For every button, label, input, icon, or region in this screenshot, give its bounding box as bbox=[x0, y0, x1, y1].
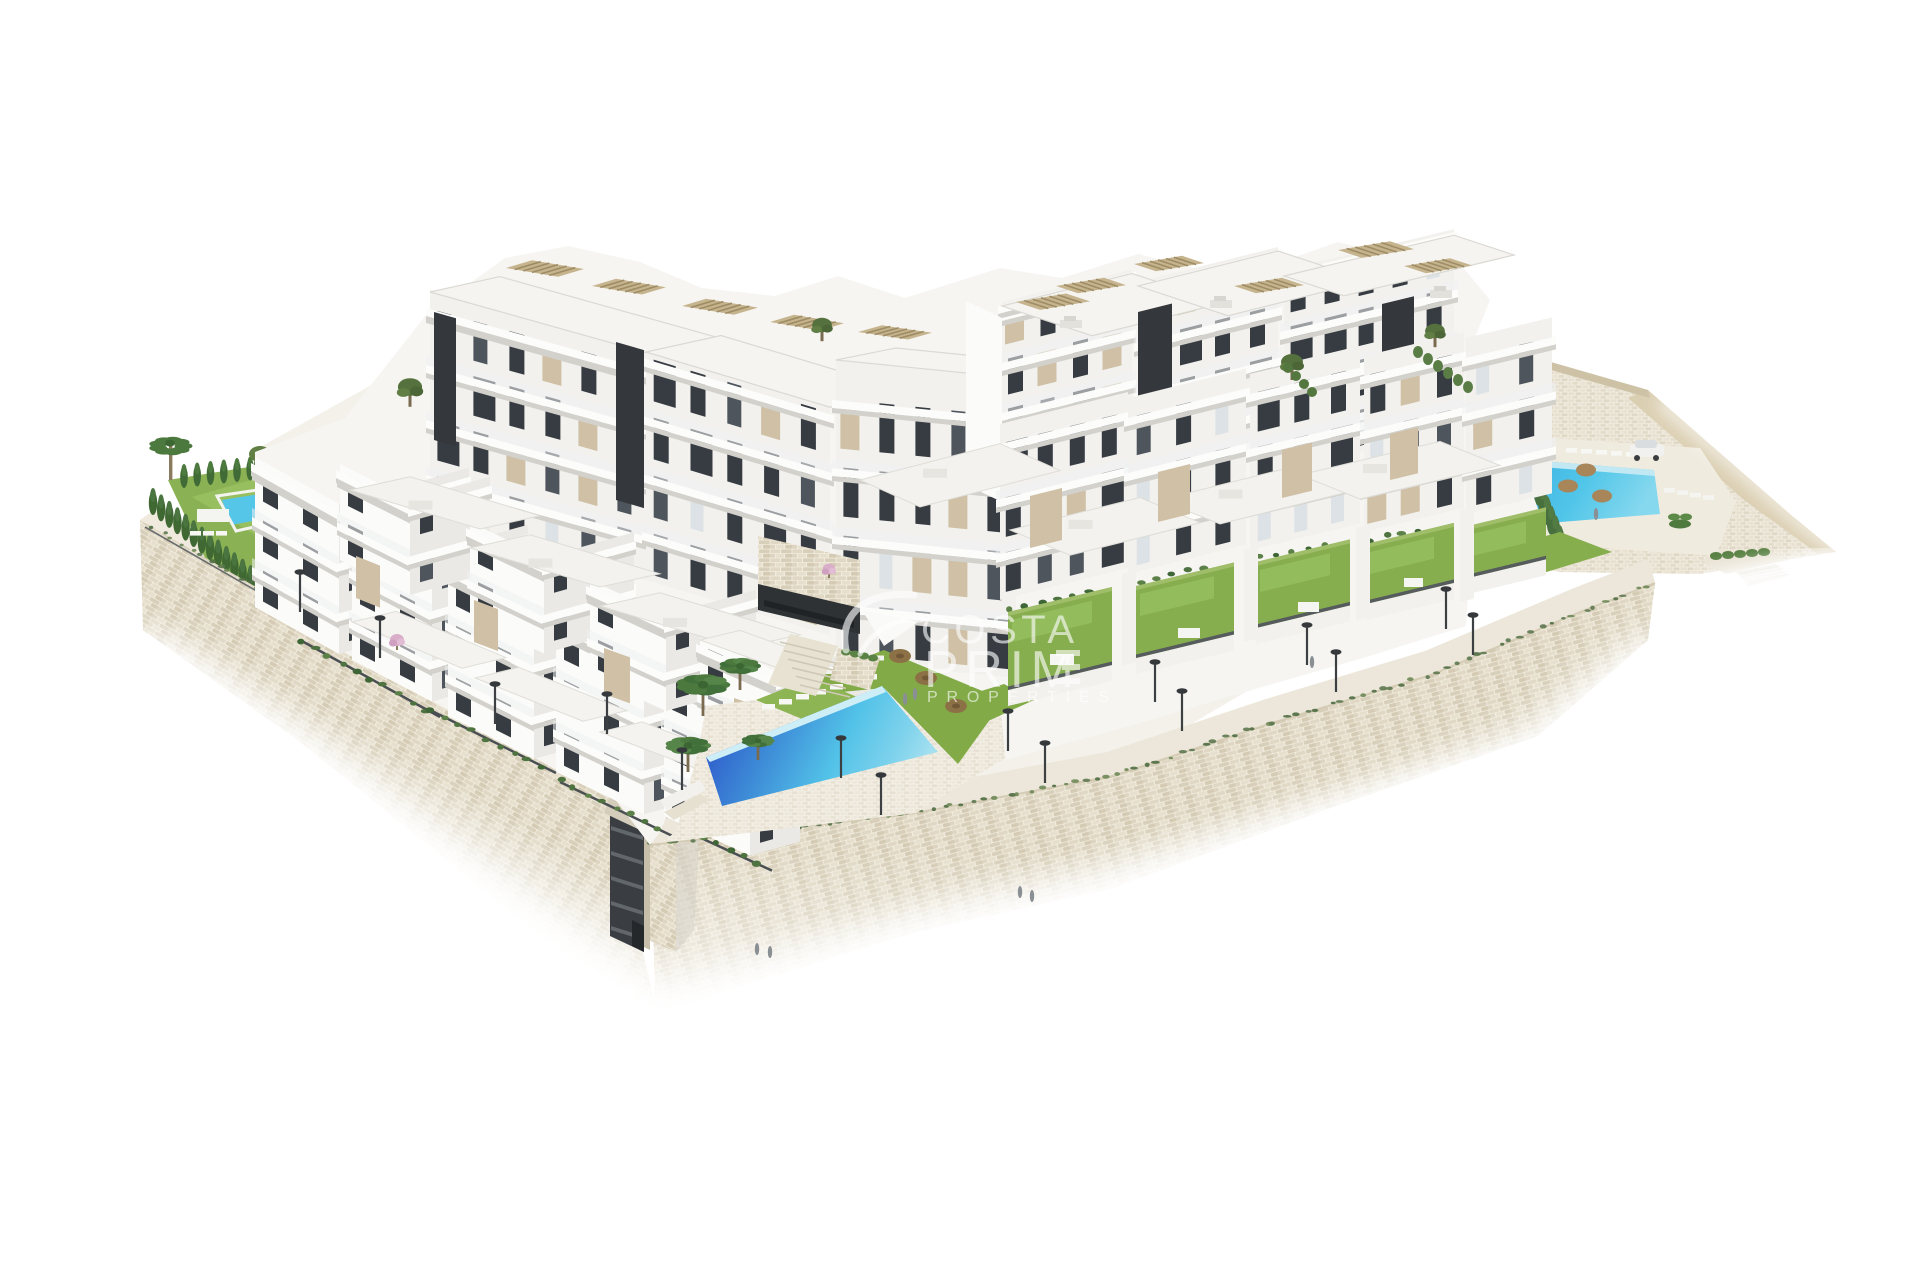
svg-text:PROPERTIES: PROPERTIES bbox=[927, 689, 1117, 706]
